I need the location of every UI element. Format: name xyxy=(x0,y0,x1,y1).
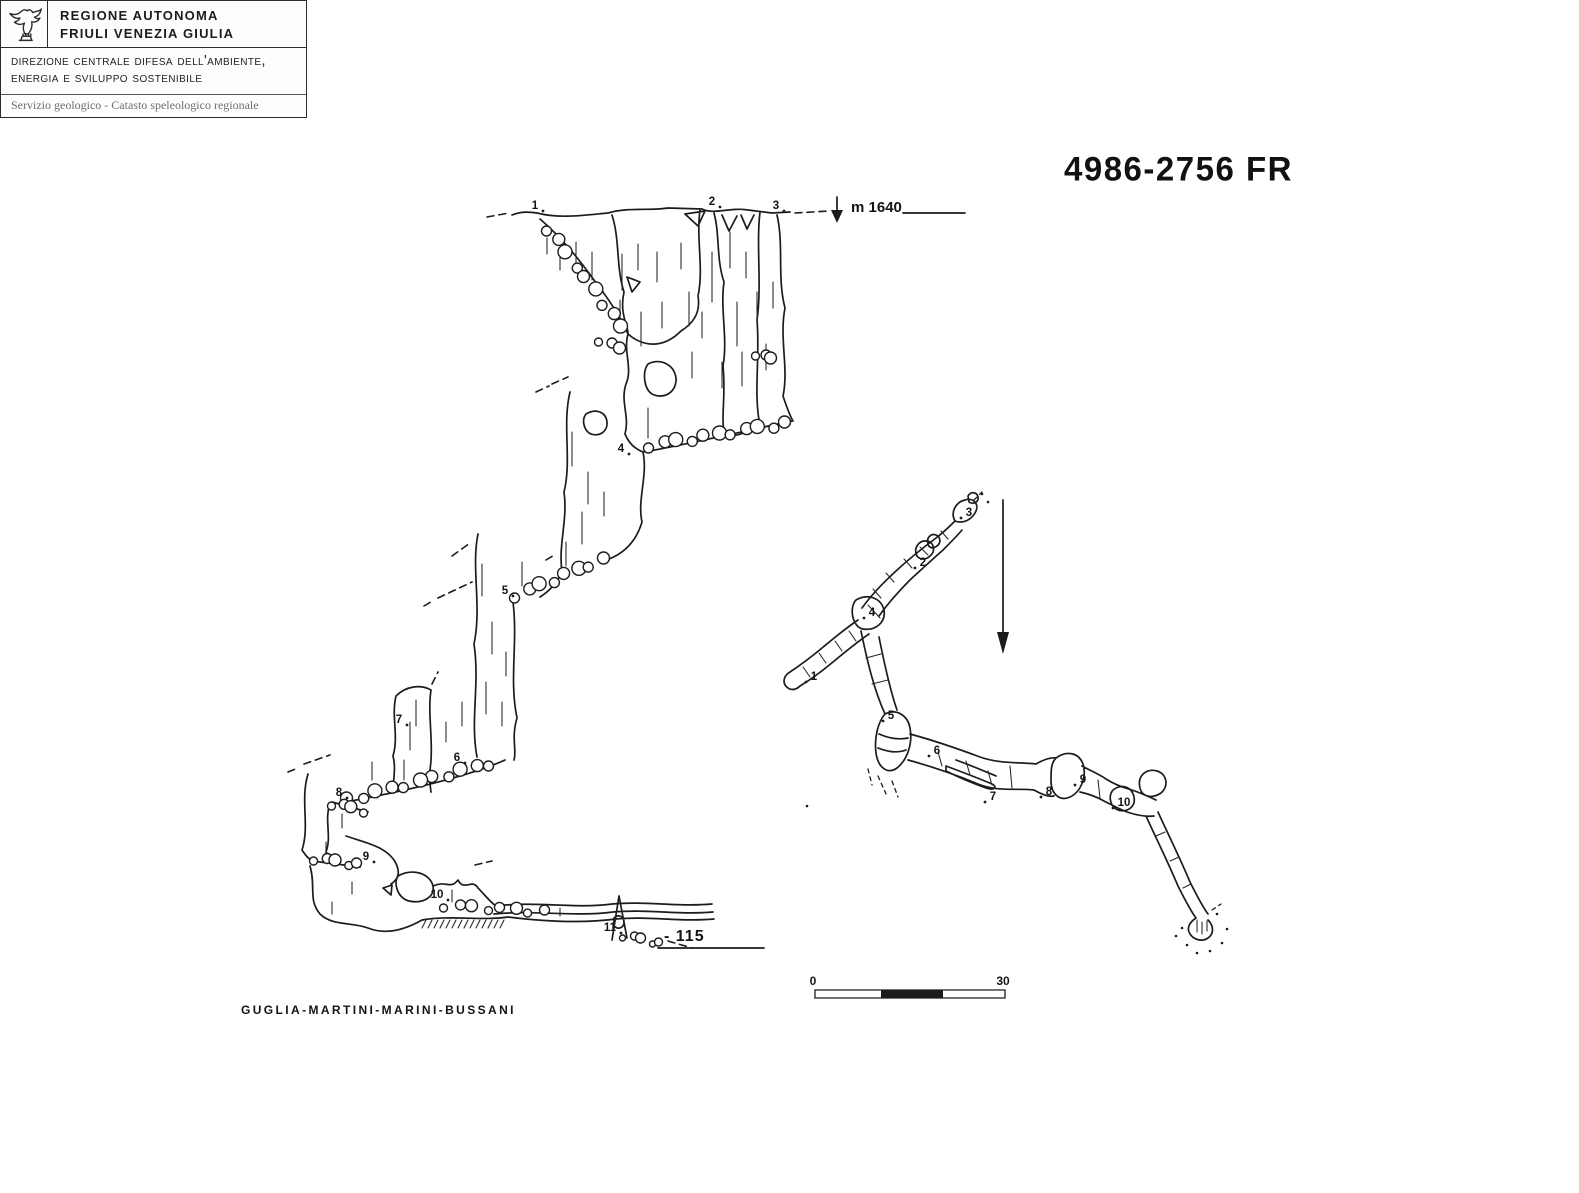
station-label: 6 xyxy=(454,752,460,764)
floor-hatch xyxy=(422,920,504,928)
boulder-icon xyxy=(368,784,382,798)
station-dot xyxy=(542,210,545,213)
boulder-icon xyxy=(655,938,663,946)
boulder-icon xyxy=(352,858,362,868)
floor-hatch-tick xyxy=(470,920,474,928)
boulder-icon xyxy=(359,793,369,803)
station-label: 3 xyxy=(966,507,972,519)
boulder-icon xyxy=(485,907,493,915)
station-label: 10 xyxy=(431,889,444,901)
altitude-label: m 1640 xyxy=(851,199,902,216)
boulder-icon xyxy=(779,416,791,428)
station-dot xyxy=(373,861,376,864)
boulder-icon xyxy=(345,801,357,813)
station-label: 7 xyxy=(396,714,402,726)
floor-hatch-tick xyxy=(494,920,498,928)
station-label: 9 xyxy=(363,851,369,863)
station-label: 1 xyxy=(532,200,539,212)
floor-hatch-tick xyxy=(476,920,480,928)
station-dot xyxy=(960,517,963,520)
boulder-icon xyxy=(558,245,572,259)
station-dot xyxy=(346,797,349,800)
boulder-icon xyxy=(598,552,610,564)
station-dot xyxy=(914,567,917,570)
profile-view-drawing xyxy=(288,197,965,948)
boulder-icon xyxy=(440,904,448,912)
station-dot xyxy=(620,932,623,935)
boulder-icon xyxy=(524,909,532,917)
station-label: 7 xyxy=(990,791,996,803)
station-label: 1 xyxy=(811,671,818,683)
boulder-icon xyxy=(328,802,336,810)
boulder-icon xyxy=(540,905,550,915)
station-dot xyxy=(512,595,515,598)
station-label: 8 xyxy=(336,787,343,799)
plan-dashed-walls xyxy=(868,492,1221,910)
boulder-icon xyxy=(466,900,478,912)
station-label: 3 xyxy=(773,200,779,212)
boulder-icon xyxy=(595,338,603,346)
boulder-icon xyxy=(558,567,570,579)
boulder-icon xyxy=(414,773,428,787)
boulder-icon xyxy=(542,226,552,236)
boulder-icon xyxy=(608,308,620,320)
profile-walls xyxy=(302,197,965,948)
station-dot xyxy=(863,617,866,620)
boulder-icon xyxy=(310,857,318,865)
altitude-arrow-icon xyxy=(831,210,843,223)
boulder-icon xyxy=(553,233,565,245)
plan-view-drawing xyxy=(784,492,1227,953)
boulder-icon xyxy=(471,760,483,772)
depth-label: - 115 xyxy=(664,928,705,945)
floor-hatch-tick xyxy=(464,920,468,928)
boulder-icon xyxy=(765,352,777,364)
station-dot xyxy=(447,899,450,902)
floor-hatch-tick xyxy=(452,920,456,928)
station-dot xyxy=(984,801,987,804)
north-arrow-head-icon xyxy=(997,632,1009,654)
station-label: 8 xyxy=(1046,786,1053,798)
boulder-icon xyxy=(511,902,523,914)
station-dot xyxy=(928,755,931,758)
boulder-icon xyxy=(636,933,646,943)
floor-hatch-tick xyxy=(428,920,432,928)
boulder-icon xyxy=(620,935,626,941)
boulder-icon xyxy=(495,902,505,912)
station-dot xyxy=(1040,796,1043,799)
boulder-icon xyxy=(687,436,697,446)
plan-walls xyxy=(784,493,1212,940)
boulder-icon xyxy=(386,781,398,793)
station-dot xyxy=(1112,807,1115,810)
boulder-icon xyxy=(597,300,607,310)
station-labels: 123456789101112345678910 xyxy=(336,196,1131,934)
boulder-icon xyxy=(669,433,683,447)
floor-hatch-tick xyxy=(500,920,504,928)
boulder-icon xyxy=(769,423,779,433)
scale-end-label: 30 xyxy=(996,974,1010,988)
boulder-icon xyxy=(360,809,368,817)
boulder-icon xyxy=(329,854,341,866)
floor-hatch-tick xyxy=(446,920,450,928)
station-label: 5 xyxy=(888,710,895,722)
boulder-icon xyxy=(589,282,603,296)
station-dot xyxy=(783,210,786,213)
boulder-icon xyxy=(532,577,546,591)
profile-rock-hatching xyxy=(326,232,773,916)
station-dot xyxy=(1074,784,1077,787)
boulder-icon xyxy=(510,593,520,603)
floor-hatch-tick xyxy=(488,920,492,928)
floor-hatch-tick xyxy=(434,920,438,928)
floor-hatch-tick xyxy=(440,920,444,928)
boulder-icon xyxy=(697,429,709,441)
station-label: 4 xyxy=(618,443,625,455)
station-label: 10 xyxy=(1118,797,1131,809)
plan-cross-ticks xyxy=(803,531,1207,934)
station-dot xyxy=(406,724,409,727)
station-label: 2 xyxy=(709,196,715,208)
station-label: 11 xyxy=(604,922,617,934)
boulder-icon xyxy=(713,426,727,440)
boulder-icon xyxy=(549,578,559,588)
boulder-icon xyxy=(725,430,735,440)
boulder-icon xyxy=(614,319,628,333)
plan-dotted-marks xyxy=(807,494,1227,953)
boulder-icon xyxy=(444,772,454,782)
boulder-icon xyxy=(456,900,466,910)
station-dot xyxy=(805,681,808,684)
floor-hatch-tick xyxy=(482,920,486,928)
boulder-icon xyxy=(752,352,760,360)
boulder-icon xyxy=(578,271,590,283)
authors-label: GUGLIA-MARTINI-MARINI-BUSSANI xyxy=(241,1003,516,1017)
boulder-symbols xyxy=(310,226,791,947)
scale-bar-fill xyxy=(881,991,943,998)
station-dot xyxy=(464,762,467,765)
boulder-icon xyxy=(614,342,626,354)
floor-hatch-tick xyxy=(422,920,426,928)
station-label: 5 xyxy=(502,585,509,597)
station-label: 2 xyxy=(920,557,926,569)
station-dot xyxy=(628,453,631,456)
boulder-icon xyxy=(750,419,764,433)
boulder-icon xyxy=(583,562,593,572)
boulder-icon xyxy=(484,761,494,771)
floor-hatch-tick xyxy=(458,920,462,928)
station-label: 6 xyxy=(934,745,940,757)
station-label: 9 xyxy=(1080,774,1086,786)
boulder-icon xyxy=(644,443,654,453)
station-label: 4 xyxy=(869,607,876,619)
station-dot xyxy=(882,720,885,723)
boulder-icon xyxy=(398,783,408,793)
station-dot xyxy=(719,206,722,209)
scale-start-label: 0 xyxy=(810,974,817,988)
cave-survey-drawing: 123456789101112345678910 m 1640 - 115 0 … xyxy=(0,0,1579,1193)
